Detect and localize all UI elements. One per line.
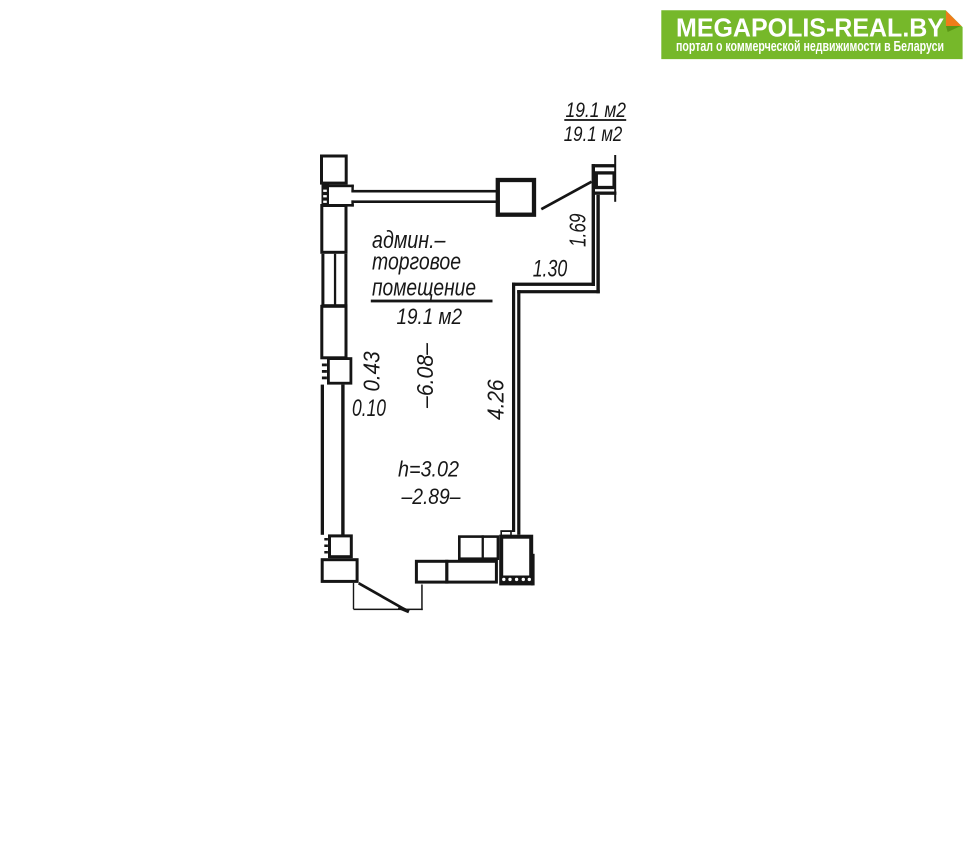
- svg-text:портал о коммерческой недвижим: портал о коммерческой недвижимости в Бел…: [676, 39, 944, 55]
- svg-text:помещение: помещение: [372, 274, 476, 301]
- svg-text:1.30: 1.30: [533, 256, 568, 283]
- svg-text:MEGAPOLIS-REAL.BY: MEGAPOLIS-REAL.BY: [676, 12, 944, 42]
- svg-text:19.1 м2: 19.1 м2: [566, 99, 627, 122]
- svg-text:–6.08–: –6.08–: [412, 343, 438, 409]
- svg-text:h=3.02: h=3.02: [398, 457, 459, 482]
- svg-text:4.26: 4.26: [483, 379, 509, 420]
- svg-text:торговое: торговое: [372, 249, 461, 276]
- svg-text:0.10: 0.10: [352, 395, 386, 422]
- svg-text:–2.89–: –2.89–: [401, 484, 461, 509]
- svg-text:19.1 м2: 19.1 м2: [564, 123, 623, 146]
- svg-text:0.43: 0.43: [358, 351, 384, 391]
- svg-text:1.69: 1.69: [565, 213, 591, 247]
- svg-text:19.1 м2: 19.1 м2: [397, 304, 463, 329]
